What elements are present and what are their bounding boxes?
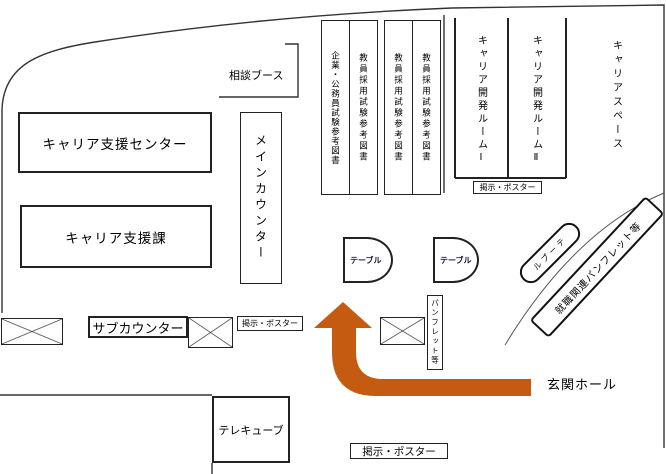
counter-crossed-middle bbox=[188, 317, 233, 348]
career-dev-room-1-label: キャリア開発ルームⅠ bbox=[474, 35, 489, 166]
bookshelf-label: 企業・公務員試験参考図書 bbox=[330, 51, 342, 165]
entrance-hall-label: 玄関ホール bbox=[547, 374, 617, 393]
career-dev-room-2: キャリア開発ルームⅡ bbox=[521, 24, 551, 176]
bookshelf-label: 教員採用試験参考図書 bbox=[421, 53, 433, 163]
sub-counter: サブカウンター bbox=[88, 316, 188, 338]
poster-board-sub-counter: 掲示・ポスター bbox=[237, 316, 303, 331]
poster-board-entrance: 掲示・ポスター bbox=[350, 443, 448, 459]
career-space-area: キャリアスペース bbox=[603, 28, 629, 163]
pamphlet-rack-label: パンフレット等 bbox=[430, 299, 441, 366]
tele-cube-room: テレキューブ bbox=[212, 396, 290, 463]
poster-board-career-rooms: 掲示・ポスター bbox=[473, 181, 542, 194]
table-d-1: テーブル bbox=[343, 237, 393, 283]
career-space-label: キャリアスペース bbox=[609, 40, 624, 152]
bookshelf-label: 教員採用試験参考図書 bbox=[358, 53, 370, 163]
counter-crossed-left bbox=[1, 318, 63, 345]
career-support-center-room: キャリア支援センター bbox=[18, 112, 212, 173]
counter-crossed-pamphlet bbox=[380, 317, 425, 345]
consult-booth-label: 相談ブース bbox=[229, 67, 283, 83]
main-counter: メインカウンター bbox=[240, 112, 282, 284]
main-counter-label: メインカウンター bbox=[253, 134, 270, 262]
table-label: テーブル bbox=[345, 255, 382, 266]
bookshelf-teacher-books-2: 教員採用試験参考図書 bbox=[384, 20, 413, 195]
table-label: テーブル bbox=[435, 255, 472, 266]
bookshelf-corporate-civil-books: 企業・公務員試験参考図書 bbox=[321, 20, 350, 195]
career-dev-room-1: キャリア開発ルームⅠ bbox=[466, 24, 496, 176]
bookshelf-label: 教員採用試験参考図書 bbox=[393, 53, 405, 163]
career-dev-room-2-label: キャリア開発ルームⅡ bbox=[529, 35, 544, 166]
bottom-wall-line bbox=[0, 395, 212, 474]
pamphlet-rack: パンフレット等 bbox=[427, 295, 443, 370]
bookshelf-teacher-books-1: 教員採用試験参考図書 bbox=[349, 20, 378, 195]
career-support-division-room: キャリア支援課 bbox=[20, 205, 212, 268]
floor-plan: 相談ブース キャリア支援センター キャリア支援課 メインカウンター 企業・公務員… bbox=[0, 0, 666, 474]
bookshelf-teacher-books-3: 教員採用試験参考図書 bbox=[412, 20, 441, 195]
